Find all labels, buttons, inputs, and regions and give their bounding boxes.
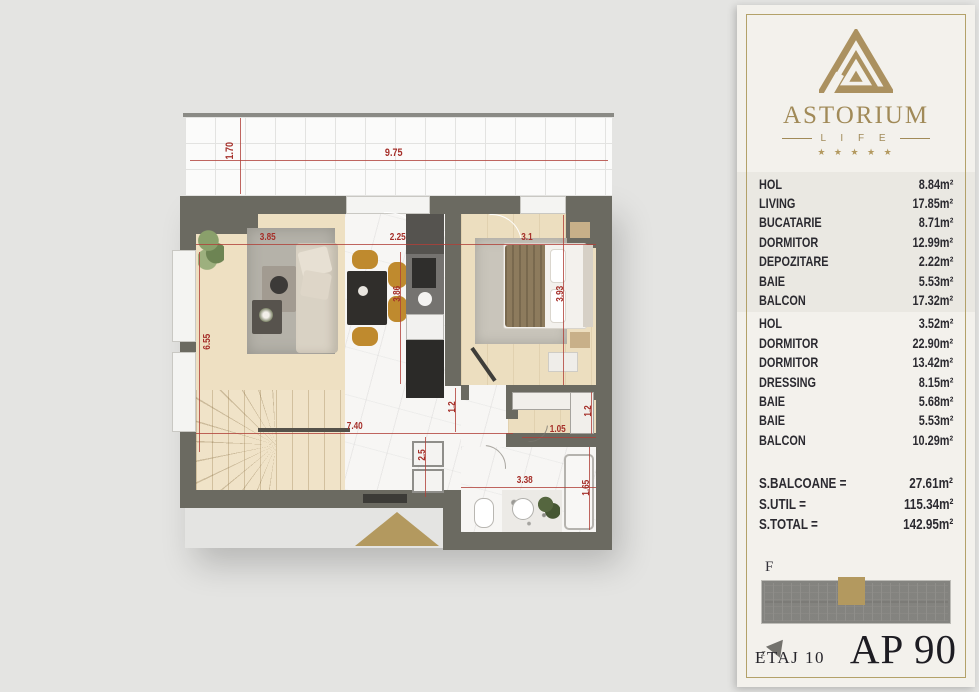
total-row: S.UTIL =115.34m² xyxy=(759,494,953,515)
brand-life: L I F E xyxy=(820,133,891,144)
total-value: 142.95m² xyxy=(903,516,953,533)
keyplan-highlighted-unit xyxy=(838,577,865,605)
room-label: DORMITOR xyxy=(759,234,818,250)
sofa-pillow-2 xyxy=(300,270,332,300)
dim-line xyxy=(522,437,596,438)
plant-living xyxy=(198,228,224,270)
room-area: 13.42m² xyxy=(912,354,953,370)
coffee-table-flowers xyxy=(259,308,273,322)
floor-label: ETAJ 10 xyxy=(755,648,825,668)
totals-block: S.BALCOANE =27.61m² S.UTIL =115.34m² S.T… xyxy=(737,473,975,535)
room-area: 17.85m² xyxy=(912,195,953,211)
dim-line xyxy=(196,433,513,434)
dim-line xyxy=(400,252,401,384)
dining-decor xyxy=(358,286,368,296)
room-row: DORMITOR22.90m² xyxy=(759,333,953,352)
room-label: HOL xyxy=(759,315,782,331)
room-area: 17.32m² xyxy=(912,292,953,308)
dim-label-bath-depth: 1.65 xyxy=(581,480,592,496)
dim-line xyxy=(461,487,596,488)
room-row: DORMITOR12.99m² xyxy=(759,232,953,251)
life-line-right xyxy=(900,138,930,139)
kitchen-cabinet-low xyxy=(406,340,444,398)
room-label: BALCON xyxy=(759,292,806,308)
room-row: BALCON17.32m² xyxy=(759,290,953,309)
room-row: DRESSING8.15m² xyxy=(759,372,953,391)
room-label: BAIE xyxy=(759,412,785,428)
dim-label-storage-width: 1.05 xyxy=(550,424,566,435)
basin xyxy=(512,498,534,520)
room-area: 8.15m² xyxy=(918,374,953,390)
room-label: DEPOZITARE xyxy=(759,253,829,269)
nightstand-1 xyxy=(570,222,590,238)
dim-label-niche-height: 2.5 xyxy=(417,449,428,460)
panel-footer: ETAJ 10 AP 90 xyxy=(755,625,957,673)
bath-plant xyxy=(536,494,560,520)
kitchen-hob xyxy=(412,258,436,288)
total-label: S.BALCOANE = xyxy=(759,475,846,492)
floorplan-brochure: 9.75 1.70 3.85 2.25 3.1 6.55 3.86 3.93 7… xyxy=(0,0,979,692)
total-row: S.BALCOANE =27.61m² xyxy=(759,473,953,494)
dim-label-bath-width: 3.38 xyxy=(517,475,533,486)
window-left-2 xyxy=(172,352,196,432)
brand-stars: ★ ★ ★ ★ ★ xyxy=(737,147,975,158)
dining-chair-1 xyxy=(352,250,378,269)
room-row: BAIE5.53m² xyxy=(759,271,953,290)
apartment-number: AP 90 xyxy=(850,625,957,673)
dining-chair-3 xyxy=(388,262,407,288)
balcony-door-bedroom xyxy=(520,196,566,214)
brand-life-row: L I F E xyxy=(737,133,975,144)
entrance-door xyxy=(363,494,407,503)
stair-railing xyxy=(258,428,350,432)
dim-line xyxy=(425,437,426,497)
room-area: 3.52m² xyxy=(918,315,953,331)
total-row: S.TOTAL =142.95m² xyxy=(759,514,953,535)
dim-label-kitchen-depth: 3.86 xyxy=(392,286,403,302)
dim-line xyxy=(196,244,596,245)
dim-line xyxy=(199,252,200,452)
entrance-arrow-icon xyxy=(355,512,439,546)
room-row: HOL3.52m² xyxy=(759,314,953,333)
room-area: 2.22m² xyxy=(918,253,953,269)
bed-headboard xyxy=(583,245,593,327)
room-area: 8.71m² xyxy=(918,214,953,230)
room-group-1: HOL8.84m² LIVING17.85m² BUCATARIE8.71m² … xyxy=(737,172,975,312)
dim-label-hall-width: 7.40 xyxy=(347,421,363,432)
room-row: BALCON10.29m² xyxy=(759,430,953,449)
total-value: 115.34m² xyxy=(904,496,953,513)
washer-stack-2 xyxy=(412,469,444,493)
wall-kitchen-bedroom xyxy=(445,214,461,386)
staircase-winder xyxy=(196,390,276,490)
room-area: 8.84m² xyxy=(918,176,953,192)
floor-plan: 9.75 1.70 3.85 2.25 3.1 6.55 3.86 3.93 7… xyxy=(0,0,737,692)
room-label: LIVING xyxy=(759,195,795,211)
room-group-2: HOL3.52m² DORMITOR22.90m² DORMITOR13.42m… xyxy=(737,312,975,452)
room-area: 22.90m² xyxy=(912,335,953,351)
wall-bedroom-bottom-stub xyxy=(461,385,469,400)
room-row: HOL8.84m² xyxy=(759,174,953,193)
room-label: BALCON xyxy=(759,432,806,448)
dim-label-balcony-depth: 1.70 xyxy=(224,142,236,160)
room-list: HOL8.84m² LIVING17.85m² BUCATARIE8.71m² … xyxy=(737,172,975,451)
room-label: BUCATARIE xyxy=(759,214,822,230)
kitchen-unit-tall xyxy=(406,214,444,254)
room-row: LIVING17.85m² xyxy=(759,193,953,212)
kitchen-dishwasher xyxy=(406,314,444,340)
room-row: DEPOZITARE2.22m² xyxy=(759,252,953,271)
dim-label-bedroom-width: 3.1 xyxy=(521,232,532,243)
nightstand-2 xyxy=(570,332,590,348)
wardrobe-top xyxy=(512,392,572,410)
room-label: DORMITOR xyxy=(759,354,818,370)
keyplan-map xyxy=(761,580,951,624)
total-label: S.UTIL = xyxy=(759,496,806,513)
dim-label-hall-height: 1.2 xyxy=(447,401,458,412)
room-label: BAIE xyxy=(759,273,785,289)
room-label: DRESSING xyxy=(759,374,816,390)
dim-label-living-width: 3.85 xyxy=(260,232,276,243)
dim-line xyxy=(240,118,241,194)
bed-blanket xyxy=(505,245,545,327)
room-row: DORMITOR13.42m² xyxy=(759,353,953,372)
room-area: 5.53m² xyxy=(918,412,953,428)
dim-label-storage-depth: 1.2 xyxy=(583,405,594,416)
brand-name: ASTORIUM xyxy=(737,102,975,130)
dining-table xyxy=(347,271,387,325)
toilet xyxy=(474,498,494,528)
dim-label-living-depth: 6.55 xyxy=(202,334,213,350)
total-label: S.TOTAL = xyxy=(759,516,818,533)
room-row: BAIE5.53m² xyxy=(759,411,953,430)
wall-bath-left xyxy=(443,490,461,550)
coffee-table-tray xyxy=(270,276,288,294)
dim-line xyxy=(190,160,608,161)
room-row: BAIE5.68m² xyxy=(759,391,953,410)
life-line-left xyxy=(782,138,812,139)
window-left-1 xyxy=(172,250,196,342)
room-label: DORMITOR xyxy=(759,335,818,351)
dim-label-balcony-width: 9.75 xyxy=(385,147,403,159)
room-label: BAIE xyxy=(759,393,785,409)
room-label: HOL xyxy=(759,176,782,192)
room-area: 5.68m² xyxy=(918,393,953,409)
brand-block: ASTORIUM L I F E ★ ★ ★ ★ ★ xyxy=(737,29,975,158)
dim-label-bedroom-depth: 3.93 xyxy=(555,286,566,302)
wall-right xyxy=(596,196,612,550)
info-panel: ASTORIUM L I F E ★ ★ ★ ★ ★ HOL8.84m² LIV… xyxy=(737,5,975,687)
keyplan-label: F xyxy=(765,559,975,576)
dining-chair-2 xyxy=(352,327,378,346)
room-row: BUCATARIE8.71m² xyxy=(759,213,953,232)
room-area: 12.99m² xyxy=(912,234,953,250)
room-area: 10.29m² xyxy=(912,432,953,448)
wall-bottom-right xyxy=(443,532,612,550)
kitchen-sink xyxy=(418,292,432,306)
room-area: 5.53m² xyxy=(918,273,953,289)
total-value: 27.61m² xyxy=(909,475,953,492)
astorium-logo-icon xyxy=(819,29,893,93)
dim-label-kitchen-width: 2.25 xyxy=(390,232,406,243)
